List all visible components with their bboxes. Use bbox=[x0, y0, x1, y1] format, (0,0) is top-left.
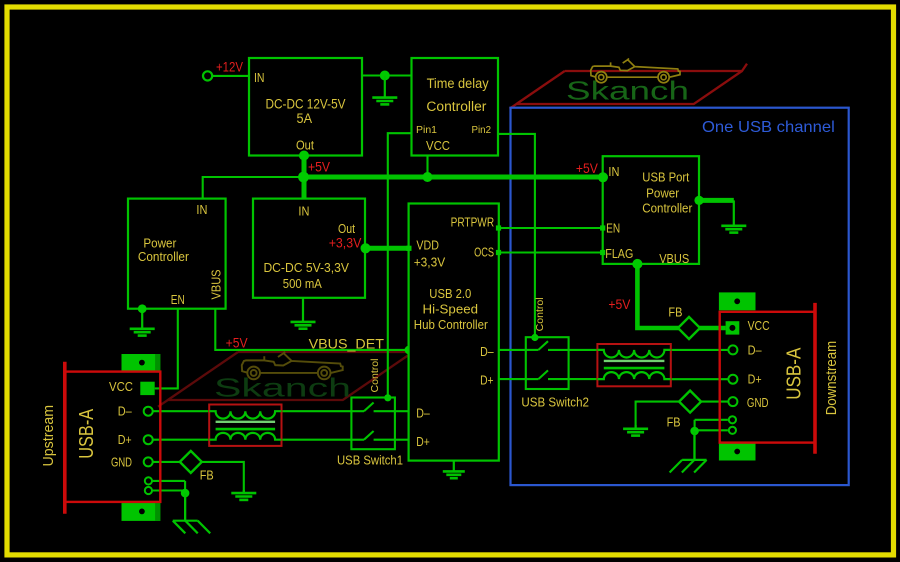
svg-text:+5V: +5V bbox=[226, 336, 248, 351]
svg-text:USB-A: USB-A bbox=[76, 408, 98, 459]
svg-text:+5V: +5V bbox=[308, 160, 330, 175]
svg-text:D–: D– bbox=[118, 404, 133, 419]
svg-text:D+: D+ bbox=[748, 372, 762, 387]
svg-text:+3,3V: +3,3V bbox=[329, 235, 362, 250]
svg-text:+12V: +12V bbox=[216, 60, 243, 75]
svg-text:One USB channel: One USB channel bbox=[702, 119, 835, 136]
svg-text:+5V: +5V bbox=[576, 161, 598, 176]
svg-text:Power: Power bbox=[646, 185, 680, 200]
svg-text:USB-A: USB-A bbox=[784, 347, 806, 400]
svg-text:DC-DC 12V-5V: DC-DC 12V-5V bbox=[266, 97, 346, 112]
svg-text:+3,3V: +3,3V bbox=[414, 255, 446, 269]
svg-text:VCC: VCC bbox=[748, 318, 770, 333]
svg-text:FB: FB bbox=[668, 305, 682, 319]
svg-text:Skanch: Skanch bbox=[566, 76, 689, 106]
svg-text:EN: EN bbox=[171, 293, 185, 307]
svg-text:PRTPWR: PRTPWR bbox=[451, 216, 495, 230]
svg-text:GND: GND bbox=[111, 455, 132, 470]
svg-text:USB Port: USB Port bbox=[642, 170, 689, 185]
svg-text:Pin2: Pin2 bbox=[472, 125, 492, 136]
svg-text:GND: GND bbox=[747, 395, 769, 410]
svg-text:USB Switch2: USB Switch2 bbox=[521, 395, 589, 410]
svg-text:VDD: VDD bbox=[416, 239, 439, 253]
svg-text:VBUS: VBUS bbox=[659, 252, 689, 266]
svg-text:VCC: VCC bbox=[109, 379, 133, 394]
svg-text:USB Switch1: USB Switch1 bbox=[337, 453, 403, 468]
svg-text:Out: Out bbox=[296, 138, 314, 153]
svg-text:EN: EN bbox=[606, 222, 620, 236]
svg-text:Downstream: Downstream bbox=[823, 341, 840, 416]
svg-text:Control: Control bbox=[534, 297, 546, 331]
svg-text:Control: Control bbox=[369, 359, 381, 393]
svg-text:Controller: Controller bbox=[138, 249, 190, 264]
svg-text:Hi-Speed: Hi-Speed bbox=[423, 303, 479, 317]
svg-text:FLAG: FLAG bbox=[605, 247, 633, 261]
svg-text:IN: IN bbox=[298, 205, 309, 219]
svg-text:VCC: VCC bbox=[426, 138, 450, 153]
svg-text:D–: D– bbox=[480, 345, 494, 359]
svg-text:D+: D+ bbox=[416, 435, 430, 449]
svg-text:DC-DC 5V-3,3V: DC-DC 5V-3,3V bbox=[263, 260, 349, 275]
svg-text:Hub Controller: Hub Controller bbox=[414, 318, 488, 332]
svg-text:500 mA: 500 mA bbox=[283, 276, 322, 291]
svg-text:Controller: Controller bbox=[642, 201, 693, 216]
svg-text:D+: D+ bbox=[118, 432, 132, 447]
svg-text:IN: IN bbox=[608, 165, 619, 179]
svg-text:USB 2.0: USB 2.0 bbox=[429, 287, 471, 301]
svg-text:FB: FB bbox=[200, 469, 214, 483]
svg-text:VBUS: VBUS bbox=[210, 270, 224, 300]
svg-text:D–: D– bbox=[416, 407, 430, 421]
svg-text:VBUS_DET: VBUS_DET bbox=[309, 335, 385, 351]
svg-text:Controller: Controller bbox=[426, 99, 487, 114]
svg-text:IN: IN bbox=[196, 202, 207, 217]
svg-text:5A: 5A bbox=[297, 111, 313, 126]
svg-text:IN: IN bbox=[254, 70, 265, 85]
svg-text:+5V: +5V bbox=[608, 297, 630, 312]
svg-text:Time delay: Time delay bbox=[427, 76, 489, 91]
svg-text:Upstream: Upstream bbox=[40, 405, 57, 467]
svg-text:FB: FB bbox=[667, 416, 681, 430]
svg-text:D+: D+ bbox=[480, 373, 494, 387]
svg-text:Skanch: Skanch bbox=[214, 373, 351, 403]
svg-text:Pin1: Pin1 bbox=[416, 125, 437, 136]
svg-text:Out: Out bbox=[338, 222, 355, 236]
svg-text:OCS: OCS bbox=[474, 246, 494, 260]
svg-text:D–: D– bbox=[748, 342, 763, 357]
